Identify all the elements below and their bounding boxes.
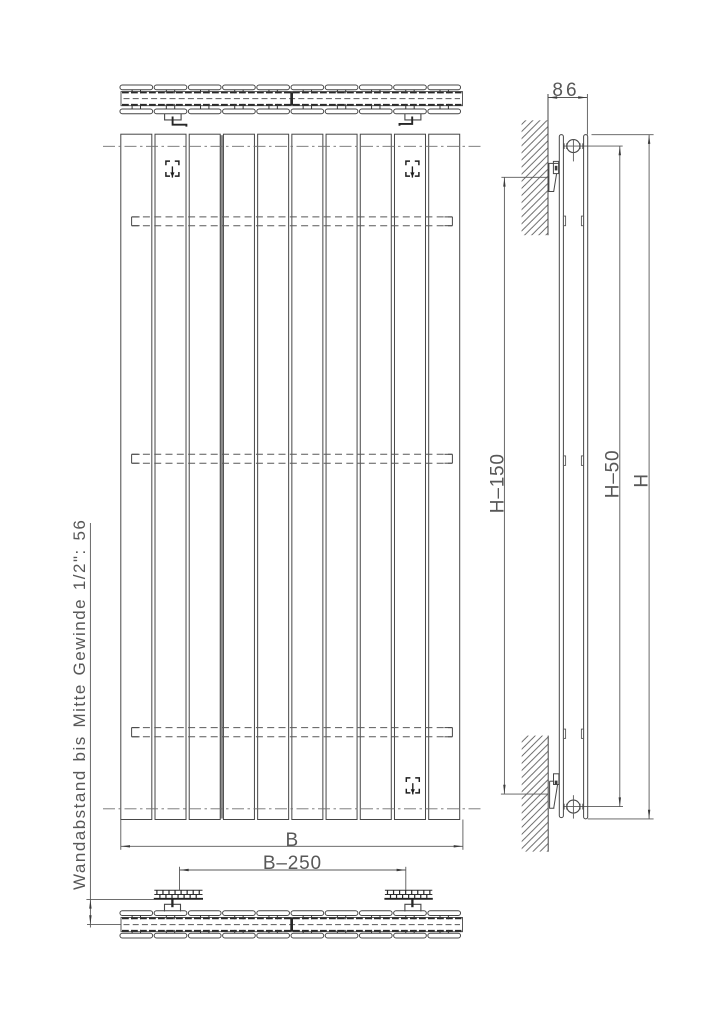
svg-text:B–250: B–250 — [263, 853, 322, 874]
svg-text:Wandabstand bis Mitte Gewin: Wandabstand bis Mitte Gewinde 1/2": 56 — [70, 519, 89, 890]
svg-text:86: 86 — [552, 80, 579, 101]
svg-text:H–150: H–150 — [488, 453, 509, 513]
svg-text:H: H — [632, 474, 653, 488]
svg-text:B: B — [285, 830, 298, 851]
svg-text:H–50: H–50 — [602, 450, 623, 499]
